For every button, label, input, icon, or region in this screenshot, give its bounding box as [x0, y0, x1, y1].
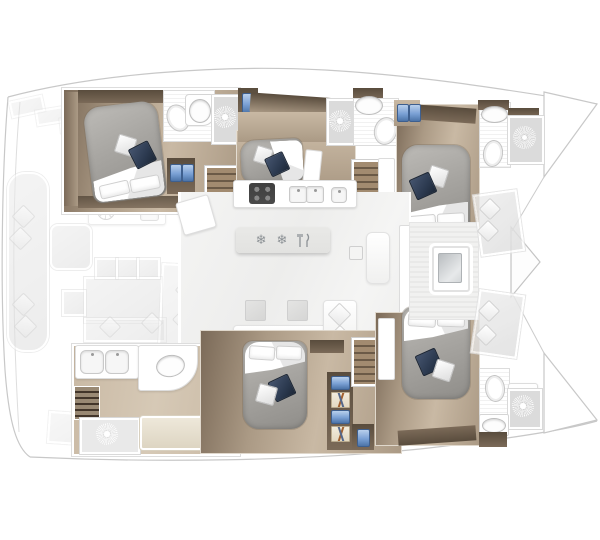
cool-box: [50, 224, 92, 270]
stbd-fwd-bed: [402, 307, 470, 399]
bow-seat-pad: [471, 289, 525, 359]
head-pillow: [249, 345, 276, 361]
aft-steps: [74, 386, 100, 420]
washbasin-blue: [409, 104, 421, 122]
freezer-snowflake-icon: ❄: [256, 234, 267, 247]
shower-door-panel: [302, 149, 322, 184]
side-table: [349, 246, 363, 260]
cockpit-chair: [116, 258, 139, 279]
washbasin: [80, 350, 104, 374]
hanger-locker: [331, 392, 350, 408]
coffee-table: [287, 300, 308, 321]
cockpit-chair: [95, 258, 118, 279]
washbasin: [189, 99, 211, 123]
washbasin-blue: [397, 104, 409, 122]
port-aft-side-locker: [64, 92, 78, 206]
bow-seat-pad: [473, 189, 525, 257]
fridge-snowflake-icon: ❄: [277, 234, 288, 247]
stove-icon: [249, 183, 275, 204]
towel-blue: [331, 410, 350, 424]
galley-island: ❄ ❄: [236, 227, 330, 253]
shower-sunburst-icon: [214, 106, 236, 128]
washbasin: [481, 106, 508, 123]
towel-blue: [331, 376, 350, 390]
shower-sunburst-icon: [329, 110, 351, 132]
cockpit-chair: [137, 258, 160, 279]
stbd-mid-bed: [243, 341, 307, 429]
hanger-locker: [331, 426, 350, 442]
bedside-locker: [310, 340, 344, 353]
washbasin: [105, 350, 129, 374]
shower-sunburst-icon: [96, 423, 118, 445]
galley-sink: [306, 186, 324, 203]
locker-item-blue: [357, 429, 370, 447]
washbasin: [482, 418, 506, 433]
head-pillow: [276, 346, 302, 361]
cockpit-side-chair: [62, 290, 86, 316]
vanity-cabinet: [479, 432, 507, 447]
cabin-door-panel: [378, 318, 395, 380]
port-bow-tip: [544, 92, 597, 177]
coffee-table: [245, 300, 266, 321]
shower-sunburst-icon: [512, 395, 534, 417]
floorplan-canvas: ❄ ❄: [0, 0, 600, 540]
locker-item-blue: [182, 164, 194, 182]
galley-appliance: [331, 187, 347, 203]
cutlery-icon: [297, 233, 310, 248]
galley-sink: [289, 186, 307, 203]
port-aft-bed: [82, 100, 167, 204]
locker-item-blue: [170, 164, 182, 182]
shower-sunburst-icon: [513, 126, 536, 149]
starboard-bow-tip: [544, 353, 597, 433]
deck-hatch-glass: [438, 253, 462, 283]
forward-bench: [366, 232, 390, 284]
washbasin: [355, 96, 383, 115]
